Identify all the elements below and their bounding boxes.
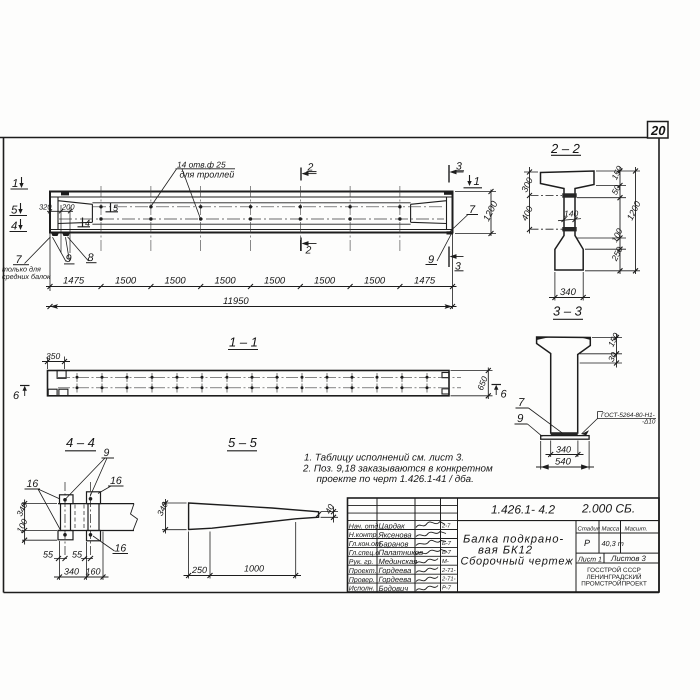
svg-text:2.000 СБ.: 2.000 СБ. (581, 502, 635, 516)
svg-text:4: 4 (11, 221, 17, 233)
svg-text:350: 350 (46, 351, 60, 361)
svg-text:7: 7 (518, 397, 525, 409)
svg-text:Гл.кон.от: Гл.кон.от (349, 541, 381, 548)
svg-text:Р-7: Р-7 (442, 586, 452, 592)
svg-text:1475: 1475 (414, 276, 436, 287)
svg-text:5 – 5: 5 – 5 (228, 435, 258, 450)
svg-text:проекте по черт 1.426.1-41 / д: проекте по черт 1.426.1-41 / дба. (317, 474, 474, 485)
svg-text:2. Поз. 9,18 заказываются в ко: 2. Поз. 9,18 заказываются в конкретном (302, 464, 493, 475)
svg-text:340: 340 (560, 287, 577, 298)
svg-text:1 – 1: 1 – 1 (229, 335, 258, 350)
svg-text:Мединская: Мединская (379, 557, 418, 566)
svg-text:Н.контр.: Н.контр. (349, 532, 379, 539)
svg-text:средних балок: средних балок (2, 272, 51, 281)
svg-text:6: 6 (501, 389, 508, 401)
svg-text:ПРОМСТРОЙПРОЕКТ: ПРОМСТРОЙПРОЕКТ (581, 580, 647, 588)
svg-text:Проект.: Проект. (349, 568, 377, 575)
svg-text:250: 250 (191, 565, 207, 575)
svg-text:40,3 т: 40,3 т (602, 539, 624, 548)
svg-text:Палатников: Палатников (379, 548, 424, 557)
svg-text:55: 55 (72, 550, 83, 560)
svg-text:2-7: 2-7 (441, 523, 451, 530)
svg-text:1: 1 (474, 176, 480, 188)
svg-text:340: 340 (556, 445, 571, 455)
svg-text:1500: 1500 (115, 276, 137, 287)
svg-text:-Δ10: -Δ10 (642, 419, 656, 426)
svg-text:1500: 1500 (364, 276, 386, 287)
svg-text:2-71-: 2-71- (441, 567, 456, 574)
svg-text:16: 16 (27, 478, 39, 490)
svg-text:Нач. отд: Нач. отд (349, 522, 379, 530)
svg-text:Яксенова: Яксенова (378, 530, 412, 539)
svg-text:2 – 2: 2 – 2 (550, 141, 581, 156)
svg-text:Р: Р (584, 538, 590, 548)
svg-text:2-71-: 2-71- (441, 576, 456, 583)
svg-text:Листов 3: Листов 3 (610, 554, 647, 563)
svg-text:1475: 1475 (63, 276, 85, 287)
svg-text:Провер.: Провер. (349, 577, 375, 584)
svg-text:200: 200 (61, 203, 75, 212)
svg-text:М-: М- (442, 559, 449, 565)
svg-text:2: 2 (305, 245, 312, 257)
svg-text:320: 320 (39, 203, 52, 212)
svg-text:Масшт.: Масшт. (625, 526, 648, 533)
svg-text:ГОССТРОЙ СССР: ГОССТРОЙ СССР (587, 566, 641, 574)
svg-text:5: 5 (11, 205, 18, 217)
svg-text:Рук. гр.: Рук. гр. (349, 559, 374, 566)
svg-text:55: 55 (43, 550, 54, 560)
svg-text:Бодович: Бодович (379, 584, 409, 593)
svg-text:16: 16 (110, 475, 122, 487)
svg-text:1. Таблицу исполнений см. лис: 1. Таблицу исполнений см. лист 3. (304, 453, 464, 464)
svg-text:Лист 1: Лист 1 (577, 557, 602, 564)
svg-text:1500: 1500 (215, 276, 237, 287)
svg-text:11950: 11950 (223, 296, 249, 307)
svg-text:Масса: Масса (602, 526, 620, 533)
svg-text:3 – 3: 3 – 3 (553, 304, 583, 319)
svg-text:Баранов: Баранов (379, 539, 409, 548)
svg-text:4: 4 (85, 218, 90, 228)
svg-text:6: 6 (13, 390, 20, 402)
svg-text:1500: 1500 (314, 276, 336, 287)
svg-text:14 отв.ф 25: 14 отв.ф 25 (177, 160, 226, 170)
svg-text:340: 340 (64, 567, 79, 577)
svg-text:1: 1 (12, 178, 18, 190)
svg-text:160: 160 (86, 567, 101, 577)
svg-text:Исполн.: Исполн. (349, 586, 375, 593)
svg-text:Б-7: Б-7 (442, 541, 452, 547)
svg-text:Гордеева: Гордеева (379, 566, 412, 575)
svg-text:1.426.1- 4.2: 1.426.1- 4.2 (491, 503, 555, 517)
svg-text:В-7: В-7 (442, 550, 452, 556)
svg-text:Сборочный чертеж: Сборочный чертеж (461, 556, 574, 568)
svg-text:540: 540 (555, 457, 572, 468)
svg-text:4 – 4: 4 – 4 (66, 435, 95, 450)
svg-text:для троллей: для троллей (180, 170, 235, 180)
svg-text:1500: 1500 (165, 276, 187, 287)
svg-text:20: 20 (650, 123, 666, 138)
svg-text:ЛЕНИНГРАДСКИЙ: ЛЕНИНГРАДСКИЙ (586, 573, 642, 581)
svg-text:Цардак: Цардак (379, 522, 406, 531)
svg-text:9: 9 (517, 413, 524, 425)
svg-text:16: 16 (115, 543, 127, 555)
svg-text:9: 9 (104, 447, 110, 459)
svg-text:Гл.спец.о: Гл.спец.о (349, 550, 380, 557)
svg-text:1000: 1000 (244, 564, 264, 574)
svg-text:Гордеева: Гордеева (379, 575, 412, 584)
svg-text:Стадия: Стадия (578, 526, 601, 533)
svg-text:1500: 1500 (264, 276, 286, 287)
